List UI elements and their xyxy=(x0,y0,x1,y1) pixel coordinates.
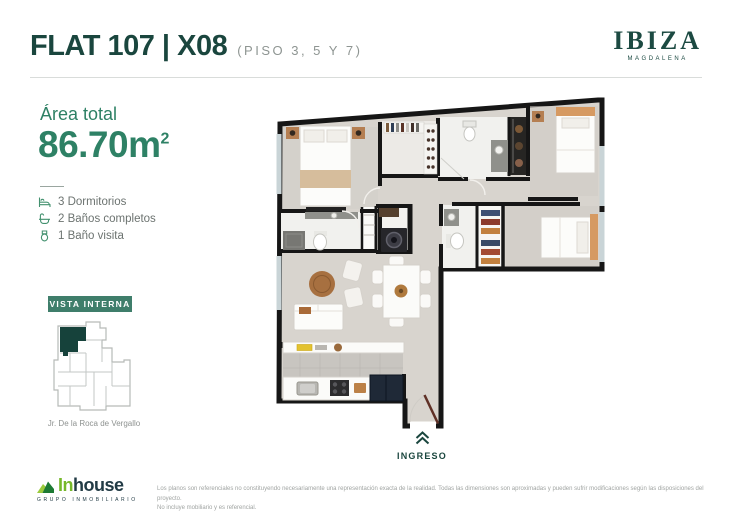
bath-icon xyxy=(38,213,51,225)
area-divider xyxy=(40,186,64,187)
feature-guest-bath: 1 Baño visita xyxy=(38,230,156,242)
feature-list: 3 Dormitorios 2 Baños completos 1 Baño v… xyxy=(38,196,156,242)
page-title: FLAT 107 | X08 xyxy=(30,30,227,63)
area-label: Área total xyxy=(40,104,117,125)
area-superscript: 2 xyxy=(161,131,169,148)
header-divider xyxy=(30,77,702,78)
bedroom-3 xyxy=(541,214,598,260)
disclaimer-line-2: No incluye mobiliario y es referencial. xyxy=(157,504,713,514)
bed-icon xyxy=(38,196,51,208)
entrance-marker: INGRESO xyxy=(392,431,452,461)
company-tagline: GRUPO INMOBILIARIO xyxy=(37,497,146,503)
company-name: Inhouse xyxy=(58,476,124,494)
project-name: IBIZA xyxy=(613,28,702,54)
area-value: 86.70m2 xyxy=(38,124,169,166)
feature-bathrooms: 2 Baños completos xyxy=(38,213,156,225)
legal-disclaimer: Los planos son referenciales no constitu… xyxy=(157,485,713,514)
wardrobe-contents xyxy=(512,119,523,173)
disclaimer-line-1: Los planos son referenciales no constitu… xyxy=(157,485,713,504)
toilet-icon xyxy=(38,230,51,242)
company-logo: Inhouse GRUPO INMOBILIARIO xyxy=(36,476,146,503)
key-plan xyxy=(46,320,142,416)
logo-part-in: In xyxy=(58,475,73,495)
feature-label: 1 Baño visita xyxy=(58,230,124,242)
vista-interna-badge: VISTA INTERNA xyxy=(48,296,132,312)
entrance-label: INGRESO xyxy=(392,451,452,461)
flyer-page: FLAT 107 | X08 (PISO 3, 5 Y 7) IBIZA MAG… xyxy=(0,0,730,516)
project-logo: IBIZA MAGDALENA xyxy=(613,28,702,62)
house-icon xyxy=(36,478,55,494)
feature-bedrooms: 3 Dormitorios xyxy=(38,196,156,208)
area-number: 86.70m xyxy=(38,124,161,165)
floor-plan xyxy=(263,95,615,435)
street-label: Jr. De la Roca de Vergallo xyxy=(38,419,150,428)
linen-closet-floor xyxy=(362,207,376,251)
feature-label: 3 Dormitorios xyxy=(58,196,126,208)
floor-levels-subtitle: (PISO 3, 5 Y 7) xyxy=(237,43,362,58)
header: FLAT 107 | X08 (PISO 3, 5 Y 7) xyxy=(30,30,362,63)
feature-label: 2 Baños completos xyxy=(58,213,156,225)
chevrons-up-icon xyxy=(414,431,431,445)
project-location: MAGDALENA xyxy=(613,56,702,62)
logo-part-house: house xyxy=(73,475,124,495)
